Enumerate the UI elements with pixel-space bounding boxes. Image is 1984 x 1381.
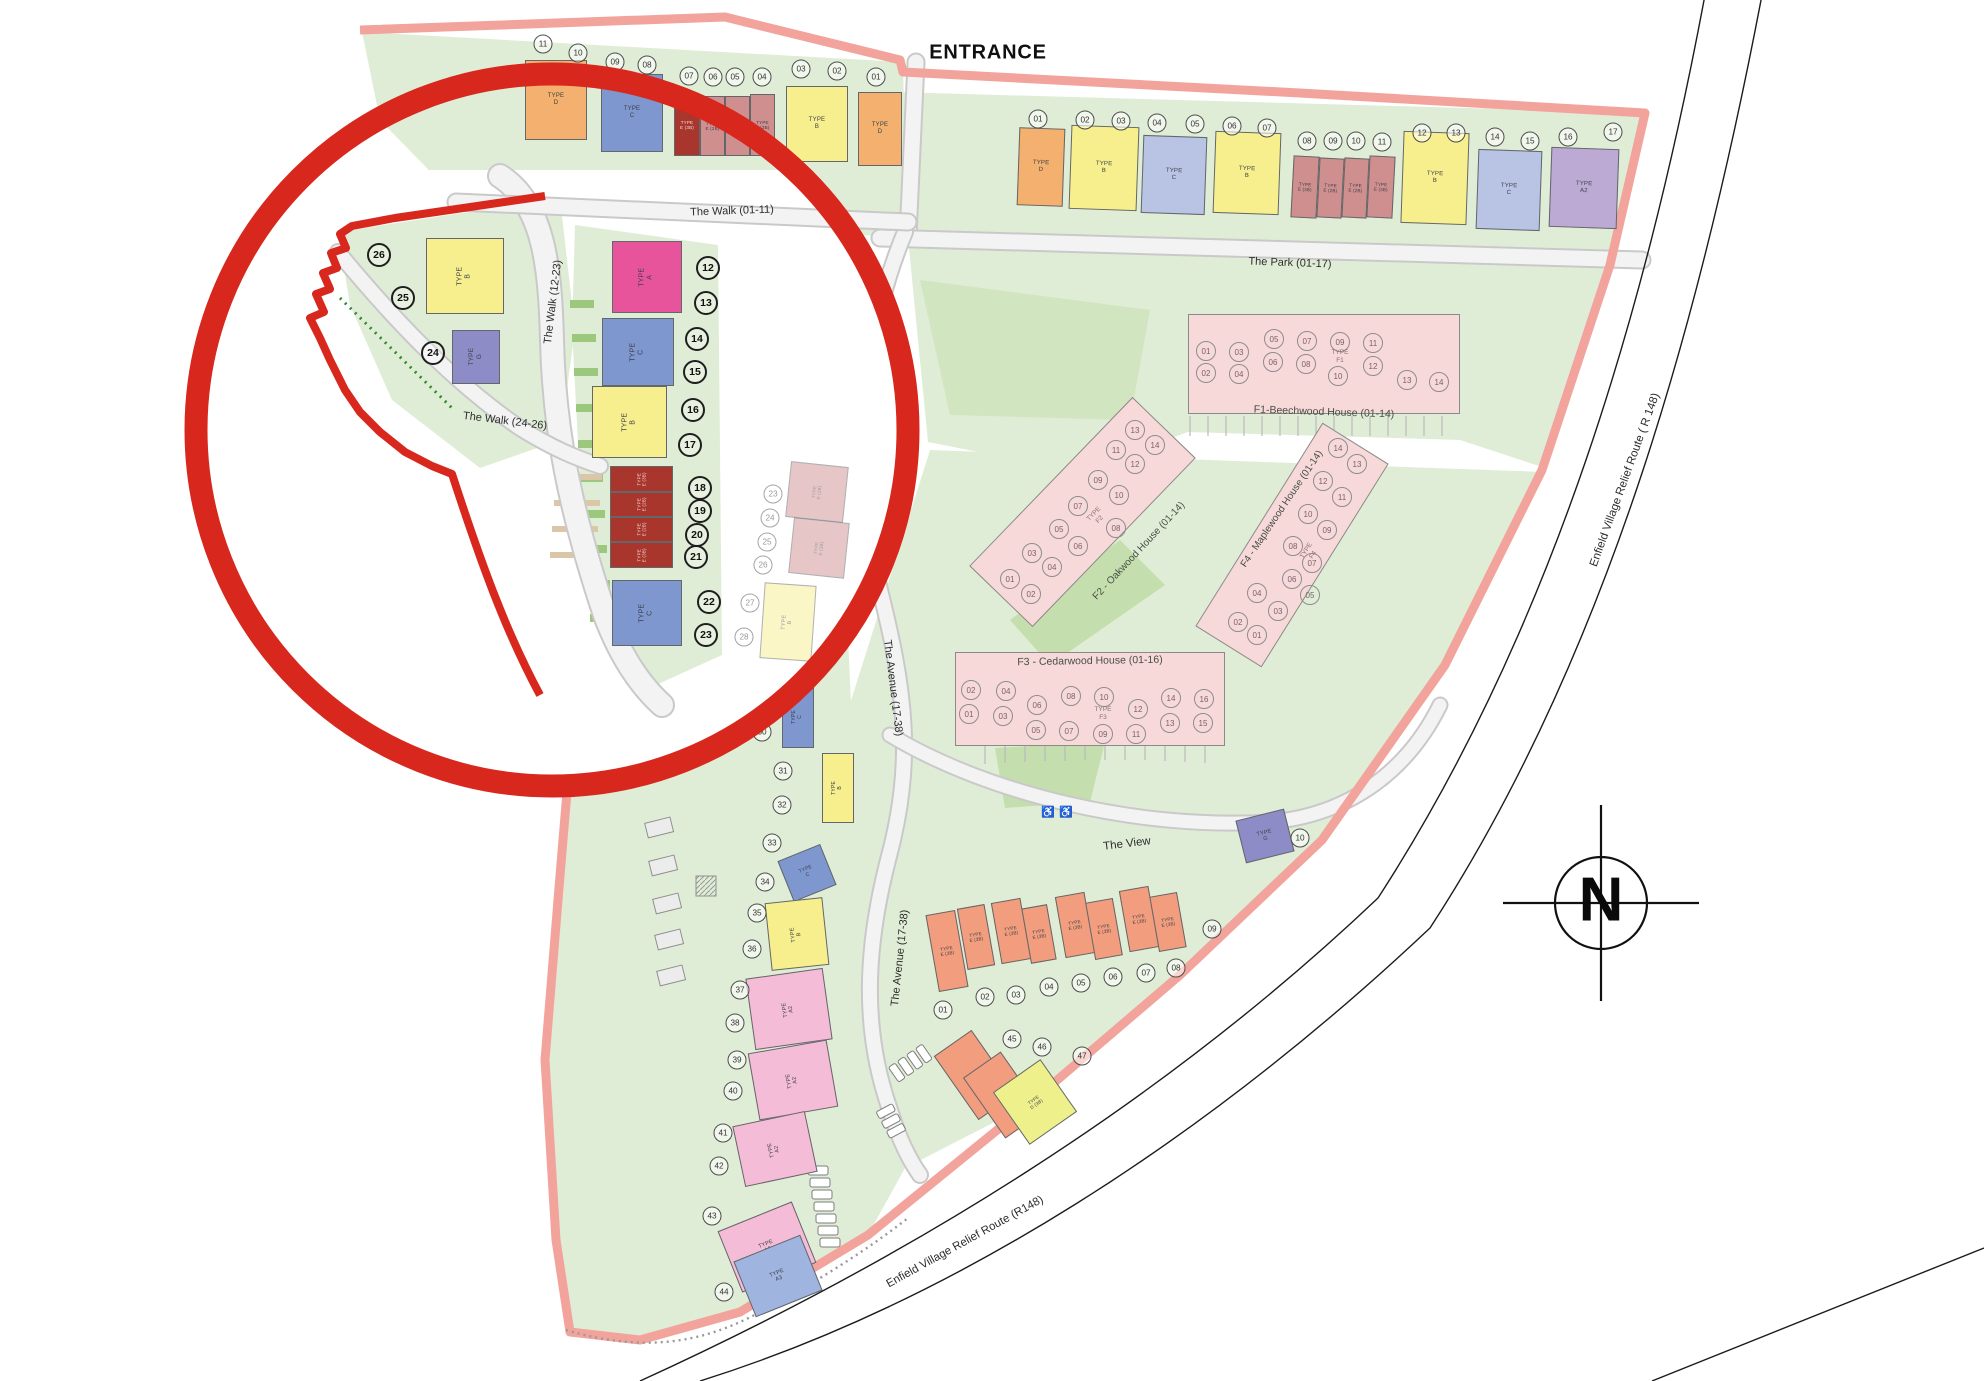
compass-north-label: N <box>1579 865 1624 936</box>
green-central <box>848 450 1545 1168</box>
base-map <box>0 0 1984 1381</box>
site-plan: TYPE DTYPE CTYPE E (3B)TYPE E (2B)TYPE E… <box>0 0 1984 1381</box>
